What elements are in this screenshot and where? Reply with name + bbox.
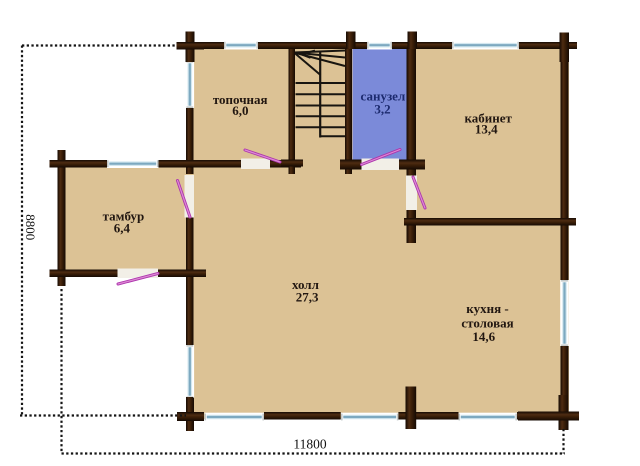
svg-text:6,4: 6,4: [114, 220, 131, 235]
svg-text:13,4: 13,4: [475, 121, 498, 136]
svg-text:14,6: 14,6: [472, 329, 495, 344]
svg-text:3,2: 3,2: [374, 102, 390, 117]
svg-text:11800: 11800: [293, 437, 326, 452]
svg-text:8800: 8800: [23, 214, 38, 240]
svg-text:кухня -: кухня -: [466, 301, 508, 316]
svg-text:6,0: 6,0: [232, 103, 248, 118]
svg-text:27,3: 27,3: [296, 290, 319, 305]
